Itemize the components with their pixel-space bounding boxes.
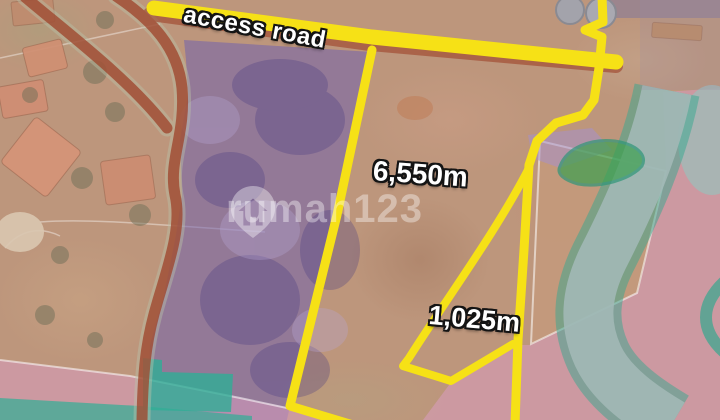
watermark: rumah123 [226,183,423,229]
map-canvas: access road 6,550m 1,025m rumah123 [0,0,720,420]
rumah123-pin-icon [226,183,280,241]
top-right-tint [640,0,720,90]
